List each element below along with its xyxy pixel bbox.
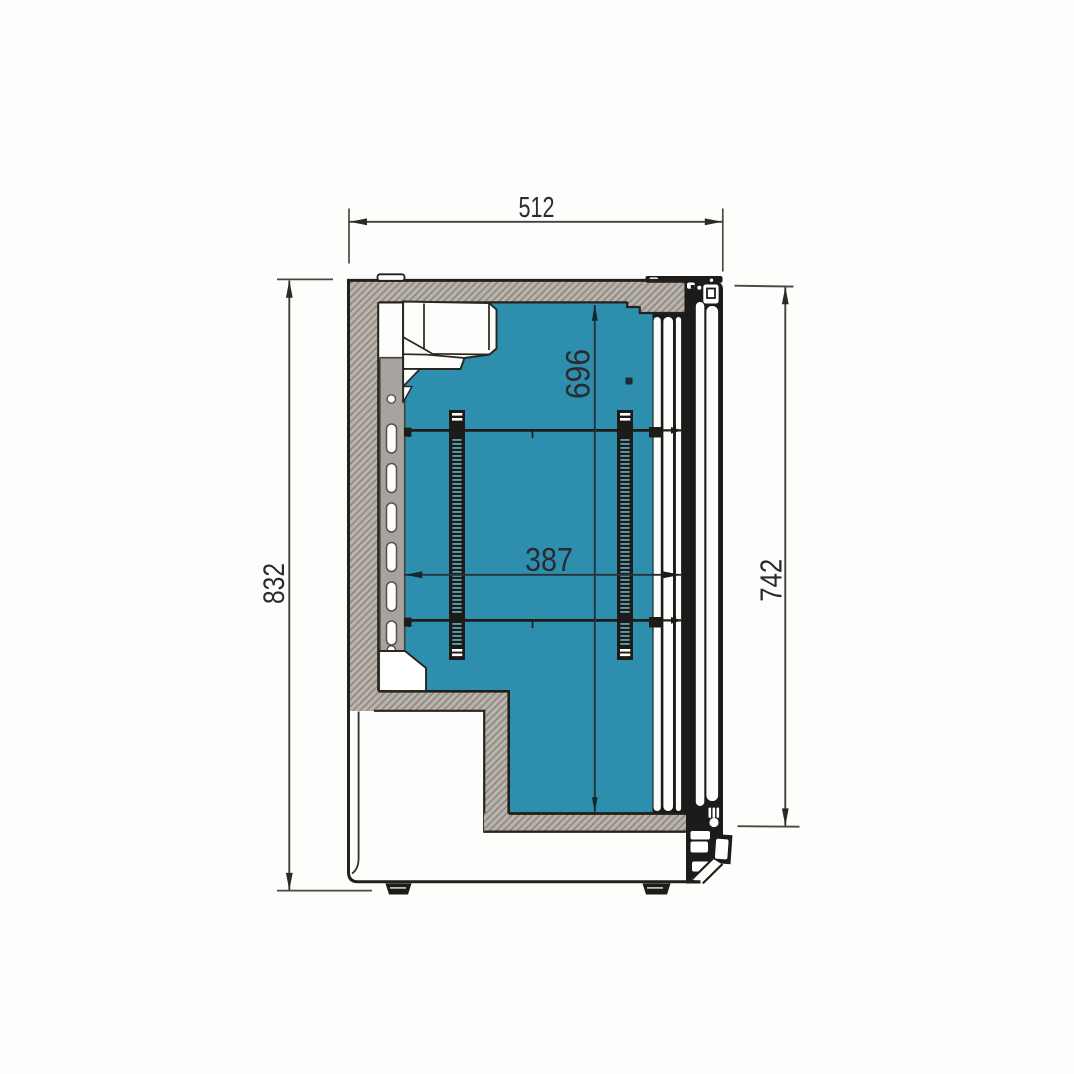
svg-text:387: 387 [525, 541, 573, 578]
svg-text:696: 696 [560, 349, 598, 399]
svg-text:512: 512 [519, 192, 555, 224]
svg-text:742: 742 [754, 559, 789, 602]
svg-text:832: 832 [258, 563, 291, 604]
